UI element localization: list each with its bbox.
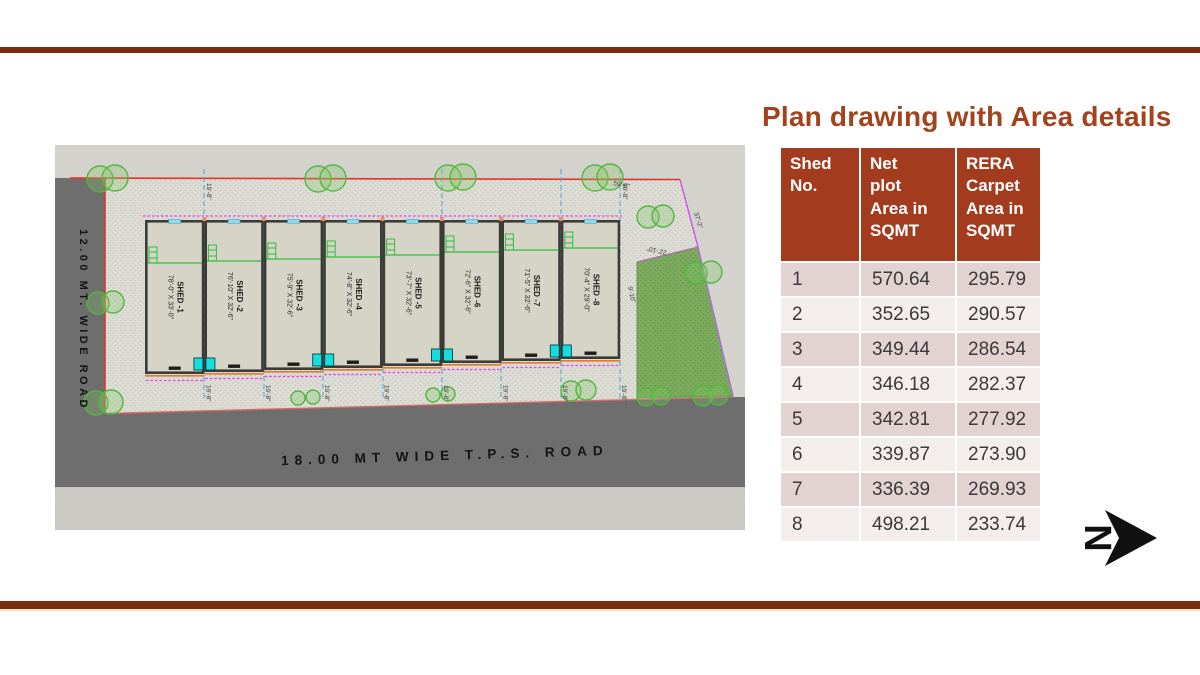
shed-label: SHED -5 [413, 277, 422, 309]
table-row: 1570.64295.79 [781, 263, 1040, 296]
shed-dimensions: 72'-6" X 32'-6" [464, 269, 471, 314]
table-row: 4346.18282.37 [781, 368, 1040, 401]
cell-shed-no: 1 [781, 263, 859, 296]
site-plan-svg: SHED -178'-0" X 33'-0"SHED -276'-10" X 3… [55, 145, 745, 530]
shed-dimensions: 70'-4" X 29'-0" [583, 267, 590, 312]
dim-shed-width-top-2: 19'-8" [621, 183, 628, 200]
shed-label: SHED -4 [354, 278, 363, 310]
cell-net-plot: 346.18 [861, 368, 955, 401]
shed-label: SHED -1 [176, 281, 185, 313]
table-row: 2352.65290.57 [781, 298, 1040, 331]
cell-shed-no: 8 [781, 508, 859, 541]
shed-label: SHED -2 [235, 280, 244, 312]
dim-shed-width-bottom: 19'-8" [442, 385, 449, 402]
tree-icon [693, 385, 728, 406]
door-icon [585, 219, 597, 223]
tree-icon [637, 387, 670, 406]
table-row: 5342.81277.92 [781, 403, 1040, 436]
shed: SHED -276'-10" X 32'-6" [204, 219, 263, 378]
shed: SHED -672'-6" X 32'-6" [442, 219, 501, 369]
dim-shed-width-bottom: 19'-8" [620, 385, 627, 402]
table-header-row: Shed No. Net plot Area in SQMT RERA Carp… [781, 148, 1040, 261]
tree-icon [87, 165, 128, 192]
shed-label: SHED -8 [592, 274, 601, 306]
header-shed-no: Shed No. [781, 148, 859, 261]
sheds-layer: SHED -178'-0" X 33'-0"SHED -276'-10" X 3… [145, 217, 620, 381]
door-icon [347, 219, 359, 223]
shed: SHED -178'-0" X 33'-0" [145, 219, 204, 380]
door-icon [288, 219, 300, 223]
door-icon [466, 219, 478, 223]
dim-shed-width-bottom: 19'-8" [501, 385, 508, 402]
table-row: 6339.87273.90 [781, 438, 1040, 471]
top-accent-bar [0, 47, 1200, 53]
site-plan-drawing: SHED -178'-0" X 33'-0"SHED -276'-10" X 3… [55, 145, 745, 530]
shed-dimensions: 78'-0" X 33'-0" [167, 275, 174, 320]
cell-net-plot: 498.21 [861, 508, 955, 541]
cell-rera-carpet: 233.74 [957, 508, 1040, 541]
shed: SHED -375'-9" X 32'-6" [264, 219, 323, 376]
cell-net-plot: 339.87 [861, 438, 955, 471]
cell-net-plot: 349.44 [861, 333, 955, 366]
table-row: 3349.44286.54 [781, 333, 1040, 366]
tree-icon [87, 291, 124, 314]
tree-icon [305, 165, 346, 192]
shed-dimensions: 76'-10" X 32'-6" [226, 272, 233, 321]
utility-box-icon [432, 349, 441, 361]
shed-label: SHED -3 [295, 279, 304, 311]
tree-icon [637, 205, 674, 228]
cell-rera-carpet: 282.37 [957, 368, 1040, 401]
shed-label: SHED -6 [473, 276, 482, 308]
table-row: 8498.21233.74 [781, 508, 1040, 541]
utility-box-icon [313, 354, 322, 366]
shed: SHED -474'-8" X 32'-6" [323, 219, 382, 374]
utility-box-icon [325, 354, 334, 366]
utility-box-icon [194, 358, 203, 370]
utility-box-icon [206, 358, 215, 370]
dim-shed-width-bottom: 19'-8" [561, 385, 568, 402]
door-icon [525, 219, 537, 223]
cell-rera-carpet: 295.79 [957, 263, 1040, 296]
utility-box-icon [550, 345, 559, 357]
tree-icon [685, 261, 722, 284]
cell-shed-no: 2 [781, 298, 859, 331]
shed-dimensions: 71'-5" X 32'-6" [523, 268, 530, 313]
north-arrow: N [1075, 500, 1185, 578]
header-rera-carpet-area: RERA Carpet Area in SQMT [957, 148, 1040, 261]
cell-net-plot: 570.64 [861, 263, 955, 296]
header-net-plot-area: Net plot Area in SQMT [861, 148, 955, 261]
cell-shed-no: 5 [781, 403, 859, 436]
cell-shed-no: 7 [781, 473, 859, 506]
north-letter: N [1076, 524, 1118, 551]
left-road-label: 12.00 MT. WIDE ROAD [77, 229, 89, 411]
shed-dimensions: 74'-8" X 32'-6" [345, 272, 352, 317]
cell-rera-carpet: 277.92 [957, 403, 1040, 436]
cell-net-plot: 336.39 [861, 473, 955, 506]
cell-rera-carpet: 286.54 [957, 333, 1040, 366]
cell-rera-carpet: 269.93 [957, 473, 1040, 506]
shed-dimensions: 75'-9" X 32'-6" [286, 273, 293, 318]
door-icon [228, 219, 240, 223]
door-icon [406, 219, 418, 223]
utility-box-icon [562, 345, 571, 357]
dim-shed-width-top-1: 19'-8" [205, 183, 212, 200]
cell-shed-no: 4 [781, 368, 859, 401]
cell-shed-no: 6 [781, 438, 859, 471]
road-edge-strip [55, 487, 745, 530]
tree-icon [435, 164, 476, 191]
dim-shed-width-bottom: 19'-8" [323, 385, 330, 402]
door-icon [169, 219, 181, 223]
shed: SHED -870'-4" X 29'-0" [561, 219, 620, 365]
cell-rera-carpet: 273.90 [957, 438, 1040, 471]
dim-shed-width-bottom: 19'-8" [383, 385, 390, 402]
cell-net-plot: 342.81 [861, 403, 955, 436]
page-title: Plan drawing with Area details [762, 102, 1172, 133]
cell-rera-carpet: 290.57 [957, 298, 1040, 331]
dim-shed-width-bottom: 19'-8" [204, 385, 211, 402]
dim-shed-width-bottom: 19'-8" [264, 385, 271, 402]
area-table: Shed No. Net plot Area in SQMT RERA Carp… [779, 146, 1042, 543]
shed-dimensions: 73'-7" X 32'-6" [404, 271, 411, 316]
bottom-accent-bar [0, 601, 1200, 611]
shed-label: SHED -7 [532, 275, 541, 307]
cell-net-plot: 352.65 [861, 298, 955, 331]
cell-shed-no: 3 [781, 333, 859, 366]
table-row: 7336.39269.93 [781, 473, 1040, 506]
utility-box-icon [444, 349, 453, 361]
